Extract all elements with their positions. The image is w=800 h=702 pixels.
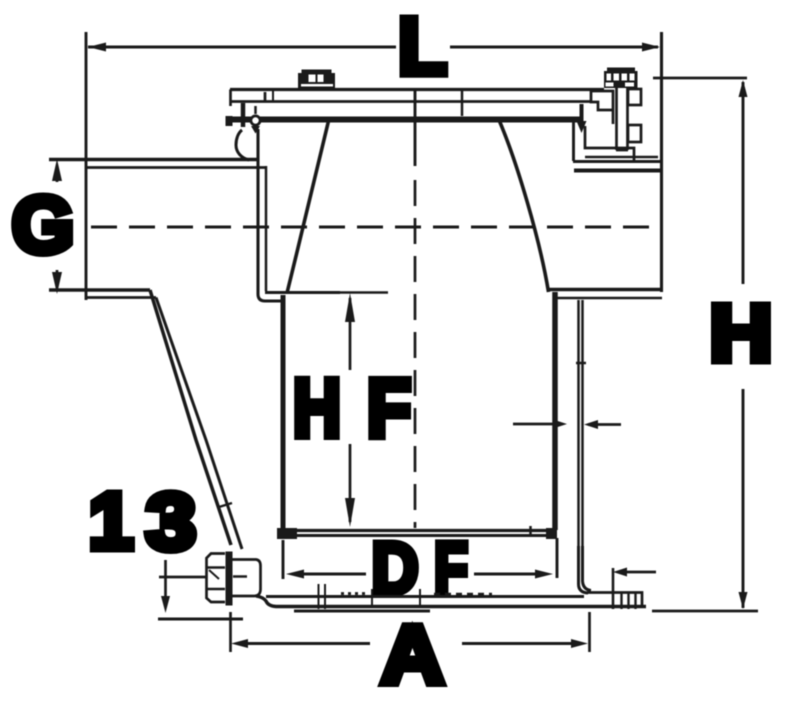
svg-text:1: 1 bbox=[89, 477, 134, 566]
svg-text:H: H bbox=[293, 363, 341, 454]
svg-text:L: L bbox=[398, 2, 447, 92]
svg-text:F: F bbox=[367, 363, 411, 454]
svg-text:3: 3 bbox=[146, 477, 196, 566]
svg-text:A: A bbox=[381, 608, 444, 701]
svg-text:G: G bbox=[12, 180, 74, 269]
svg-text:H: H bbox=[710, 289, 773, 378]
